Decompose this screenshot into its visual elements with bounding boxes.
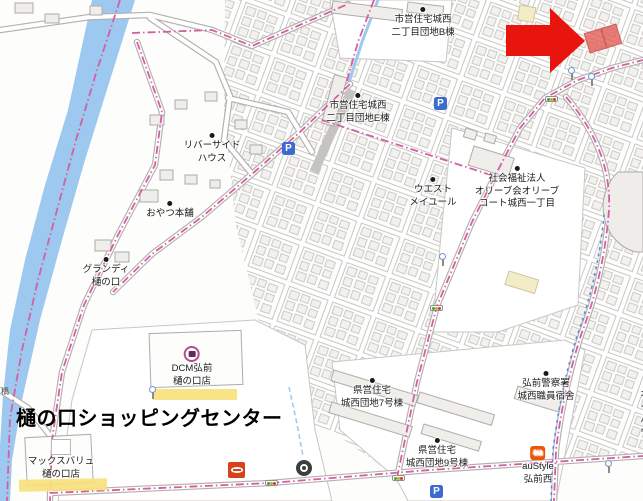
grandi-building xyxy=(95,240,111,251)
street-lamp-icon xyxy=(439,253,447,266)
label-bridge: 橋 xyxy=(1,386,9,397)
wheel-shop-icon xyxy=(296,460,312,476)
label-shiei-e: 市営住宅城西 二丁目団地E棟 xyxy=(326,93,389,125)
store-logo-icon xyxy=(228,462,245,478)
dcm-store-icon xyxy=(184,346,200,362)
shopping-center-title: 樋の口ショッピングセンター xyxy=(16,402,283,431)
red-arrow-shape xyxy=(506,5,586,75)
label-west-meilleur: ウエスト メイユール xyxy=(409,177,456,209)
poi-text: おやつ本舗 xyxy=(146,208,194,221)
poi-text: グランディ 樋の口 xyxy=(83,264,130,289)
poi-dot xyxy=(167,201,172,206)
au-logo-icon: au xyxy=(531,446,546,460)
highlight-dcm xyxy=(153,389,237,400)
label-kenei-9: 県営住宅 城西団地9号棟 xyxy=(406,438,468,470)
poi-text: 県営住宅 城西団地9号棟 xyxy=(406,445,468,470)
street-lamp-icon xyxy=(588,73,596,86)
maxvalu-logo-icon xyxy=(51,439,71,455)
poi-dot xyxy=(210,133,215,138)
poi-text: リバーサイド ハウス xyxy=(184,140,241,165)
poi-text: 市営住宅城西 二丁目団地B棟 xyxy=(391,14,454,39)
label-riverside-house: リバーサイド ハウス xyxy=(184,133,241,165)
label-grandi-hinokuchi: グランディ 樋の口 xyxy=(83,257,130,289)
lamp-stem xyxy=(608,466,610,473)
poi-text: 市営住宅城西 二丁目団地E棟 xyxy=(326,100,389,125)
poi-text: ウエスト メイユール xyxy=(409,184,456,209)
poi-text: auStyle 弘前西 xyxy=(522,461,554,486)
poi-dot xyxy=(434,438,439,443)
label-police-dorm: 弘前警察署 城西職員宿舎 xyxy=(517,371,574,403)
label-shiei-b: 市営住宅城西 二丁目団地B棟 xyxy=(391,7,454,39)
label-olive-court: 社会福祉法人 オリーブ会オリーブ コート城西一丁目 xyxy=(475,166,559,211)
traffic-signal-icon xyxy=(392,475,405,481)
target-building-divider xyxy=(600,29,607,48)
label-kenei-7: 県営住宅 城西団地7号棟 xyxy=(341,378,403,410)
poi-dot xyxy=(356,93,361,98)
poi-text: DCM弘前 樋の口店 xyxy=(172,363,213,388)
street-lamp-icon xyxy=(605,460,613,473)
poi-dot xyxy=(515,166,520,171)
traffic-signal-icon xyxy=(545,96,558,102)
map-canvas[interactable]: 樋の口ショッピングセンター 市営住宅城西 二丁目団地B棟 市営住宅城西 二丁目団… xyxy=(0,0,643,501)
lamp-stem xyxy=(152,392,154,399)
lamp-stem xyxy=(591,79,593,86)
label-au-style: au auStyle 弘前西 xyxy=(522,446,554,486)
store-logo-oval xyxy=(231,467,243,473)
label-maxvalu: マックスバリュ 樋の口店 xyxy=(28,439,94,481)
shopping-bag-glyph xyxy=(188,351,195,357)
poi-text: 弘前警察署 城西職員宿舎 xyxy=(517,378,574,403)
poi-dot xyxy=(421,7,426,12)
poi-text: 県営住宅 城西団地7号棟 xyxy=(341,385,403,410)
red-arrow-marker xyxy=(506,5,586,75)
parking-icon: P xyxy=(434,97,447,110)
parking-icon: P xyxy=(282,142,295,155)
traffic-signal-icon xyxy=(265,480,278,486)
label-dcm: DCM弘前 樋の口店 xyxy=(172,346,213,388)
parking-icon: P xyxy=(430,485,443,498)
poi-text: マックスバリュ 樋の口店 xyxy=(28,456,94,481)
poi-dot xyxy=(431,177,436,182)
poi-dot xyxy=(104,257,109,262)
label-oyatsu-honpo: おやつ本舗 xyxy=(146,201,194,221)
traffic-signal-icon xyxy=(430,305,443,311)
street-lamp-icon xyxy=(149,386,157,399)
lamp-stem xyxy=(442,259,444,266)
poi-dot xyxy=(369,378,374,383)
poi-text: 社会福祉法人 オリーブ会オリーブ コート城西一丁目 xyxy=(475,173,559,211)
poi-dot xyxy=(543,371,548,376)
